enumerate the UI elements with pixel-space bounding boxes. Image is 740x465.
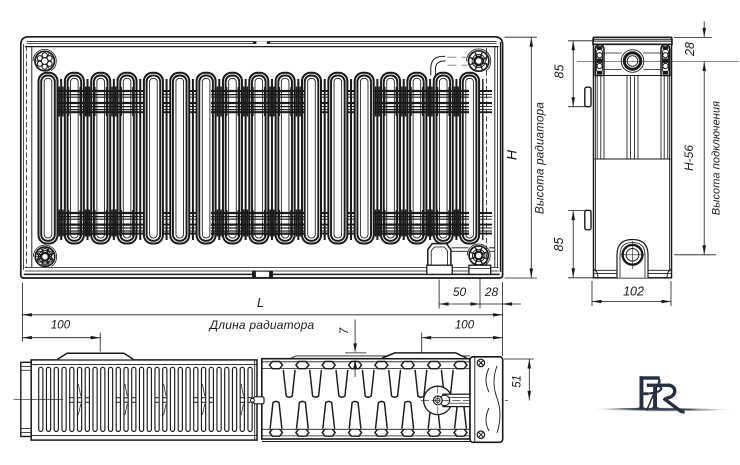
svg-text:Высота подключения: Высота подключения <box>711 101 723 215</box>
svg-text:H: H <box>504 149 520 160</box>
svg-text:102: 102 <box>623 285 644 299</box>
svg-text:L: L <box>257 296 264 310</box>
svg-text:Н-56: Н-56 <box>682 145 696 171</box>
svg-text:51: 51 <box>512 375 524 388</box>
svg-text:28: 28 <box>683 42 697 57</box>
svg-text:100: 100 <box>455 320 475 332</box>
svg-text:7: 7 <box>339 327 351 334</box>
svg-text:85: 85 <box>553 65 567 79</box>
svg-text:28: 28 <box>484 285 499 299</box>
svg-text:Высота радиатора: Высота радиатора <box>534 102 547 214</box>
svg-text:85: 85 <box>552 238 566 252</box>
svg-text:50: 50 <box>453 285 467 299</box>
svg-text:Длина радиатора: Длина радиатора <box>208 318 315 332</box>
svg-text:100: 100 <box>51 320 71 332</box>
